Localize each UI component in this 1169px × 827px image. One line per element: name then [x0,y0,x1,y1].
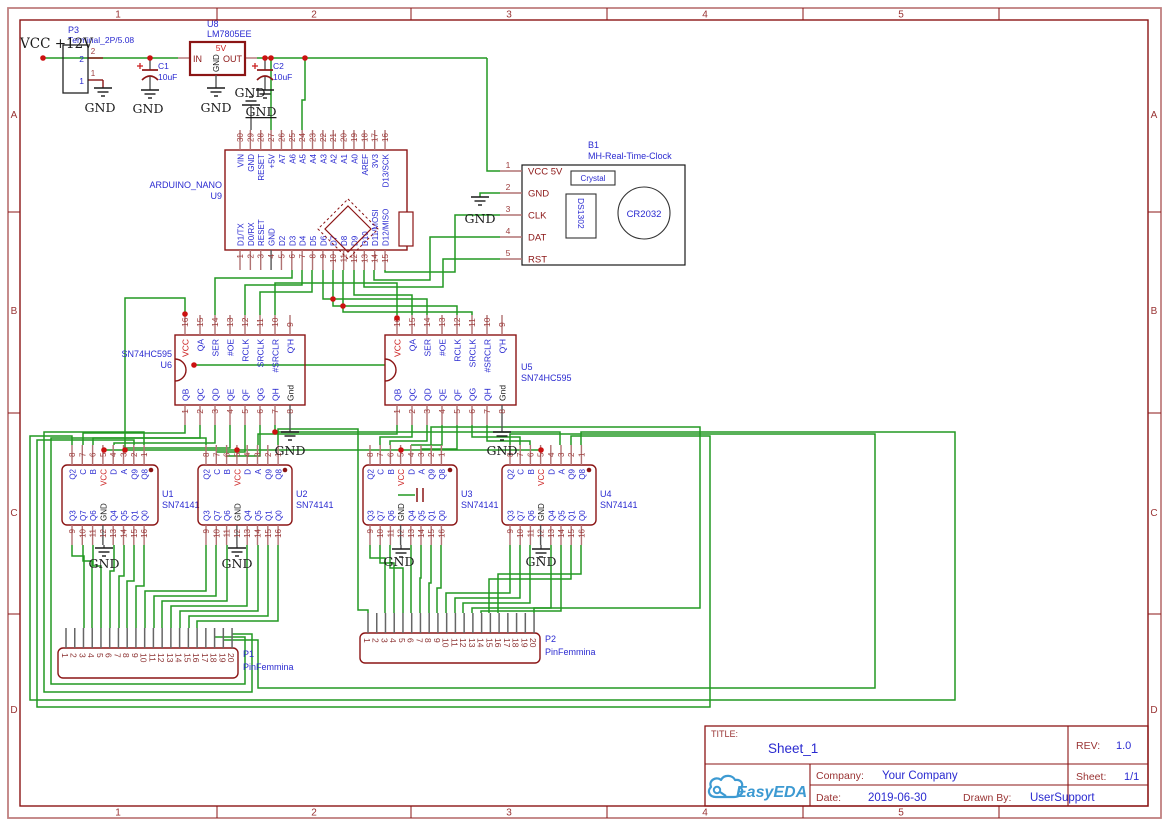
svg-text:13: 13 [243,528,252,537]
svg-text:A6: A6 [288,153,297,163]
gnd-symbol [281,432,299,440]
svg-text:10: 10 [376,528,385,537]
component-u4[interactable]: 89Q2Q3710CQ7611BQ6512VCCGND413DQ4314AQ52… [502,445,638,545]
svg-text:#OE: #OE [438,339,448,356]
svg-text:26: 26 [277,133,286,142]
svg-text:B: B [387,469,396,474]
svg-text:17: 17 [371,133,380,142]
svg-text:9: 9 [506,528,515,533]
svg-text:7: 7 [482,409,492,414]
svg-text:DAT: DAT [528,233,546,244]
schematic-sheet: 301VIND1/TX292GNDD0/RX283RESETRESET274+5… [0,0,1169,827]
svg-text:16: 16 [577,528,586,537]
svg-text:GND: GND [246,104,277,119]
component-u3[interactable]: 89Q2Q3710CQ7611BQ6512VCCGND413DQ4314AQ52… [363,445,499,545]
component-b1-rtc[interactable]: 1VCC 5V2GND3CLK4DAT5RSTCrystalDS1302CR20… [500,140,685,266]
svg-text:14: 14 [371,253,380,262]
svg-text:7: 7 [270,409,280,414]
svg-text:#SRCLR: #SRCLR [483,339,493,373]
svg-text:2: 2 [79,54,84,64]
svg-text:5: 5 [898,808,904,819]
svg-text:3: 3 [506,10,512,21]
svg-text:QD: QD [423,388,433,401]
svg-text:14: 14 [476,638,486,648]
svg-text:6: 6 [467,409,477,414]
svg-text:2: 2 [311,10,317,21]
svg-text:20: 20 [528,638,538,648]
svg-text:5: 5 [95,653,105,658]
svg-text:U2: U2 [296,489,308,499]
svg-text:2: 2 [567,452,576,457]
svg-text:GND: GND [201,100,232,115]
svg-text:GND: GND [235,85,266,100]
svg-text:B: B [89,469,98,474]
svg-text:RESET: RESET [257,154,266,181]
svg-text:Q7: Q7 [213,510,222,521]
svg-text:17: 17 [200,653,210,663]
svg-text:1: 1 [236,253,245,258]
component-u8-regulator[interactable]: INOUTGND5VU8LM7805EE [178,19,257,75]
drawnby-value[interactable]: UserSupport [1030,792,1095,804]
svg-text:Q1: Q1 [264,510,273,521]
component-p2[interactable]: 1234567891011121314151617181920P2PinFemm… [360,613,596,663]
svg-text:15: 15 [427,528,436,537]
svg-text:Q5: Q5 [254,510,263,521]
svg-text:Q8: Q8 [275,468,284,479]
svg-text:SN74141: SN74141 [162,500,200,510]
svg-text:9: 9 [366,528,375,533]
svg-text:B: B [527,469,536,474]
svg-text:Q3: Q3 [203,510,212,521]
svg-text:C: C [1150,508,1157,519]
svg-text:12: 12 [452,317,462,327]
svg-text:A4: A4 [309,153,318,163]
svg-text:13: 13 [225,317,235,327]
svg-text:7: 7 [212,452,221,457]
svg-text:QF: QF [453,389,463,401]
svg-text:2: 2 [195,409,205,414]
svg-text:10: 10 [329,253,338,262]
svg-text:4: 4 [388,638,398,643]
svg-text:Q2: Q2 [507,468,516,479]
svg-text:2: 2 [246,253,255,258]
svg-text:19: 19 [519,638,529,648]
svg-text:11: 11 [526,528,535,537]
company-label: Company: [816,770,864,782]
svg-text:#SRCLR: #SRCLR [271,339,281,373]
svg-text:3: 3 [422,409,432,414]
svg-text:7: 7 [78,452,87,457]
svg-text:Q8: Q8 [578,468,587,479]
svg-text:Q4: Q4 [110,510,119,521]
svg-text:10uF: 10uF [158,72,177,82]
svg-text:QF: QF [241,389,251,401]
svg-text:A7: A7 [278,153,287,163]
svg-text:23: 23 [309,133,318,142]
title-label: TITLE: [711,729,738,739]
svg-text:10: 10 [78,528,87,537]
svg-text:D4: D4 [299,235,308,246]
svg-text:QA: QA [196,339,206,352]
gnd-symbols [94,75,550,557]
svg-text:12: 12 [537,528,546,537]
svg-text:SN74141: SN74141 [296,500,334,510]
gnd-symbol [493,432,511,440]
gnd-symbol [228,548,246,556]
svg-text:D2: D2 [278,235,287,246]
svg-text:3: 3 [210,409,220,414]
svg-text:SN74HC595: SN74HC595 [121,349,172,359]
svg-text:28: 28 [257,133,266,142]
svg-text:10: 10 [212,528,221,537]
svg-text:Q5: Q5 [418,510,427,521]
svg-text:A: A [418,468,427,474]
svg-text:10: 10 [270,317,280,327]
svg-text:Q'H: Q'H [498,339,508,353]
svg-text:Q1: Q1 [130,510,139,521]
schematic-canvas[interactable]: 301VIND1/TX292GNDD0/RX283RESETRESET274+5… [0,0,1169,827]
svg-text:15: 15 [567,528,576,537]
svg-text:GND: GND [133,101,164,116]
svg-text:16: 16 [191,653,201,663]
svg-text:11: 11 [255,318,265,327]
svg-text:5: 5 [277,253,286,258]
title-block[interactable]: TITLE: Sheet_1 REV: 1.0 Company: Your Co… [705,726,1148,806]
svg-text:14: 14 [210,317,220,327]
svg-text:Q4: Q4 [407,510,416,521]
svg-text:Q7: Q7 [517,510,526,521]
svg-text:25: 25 [288,133,297,142]
svg-text:VCC: VCC [537,469,546,486]
svg-text:3: 3 [77,653,87,658]
svg-text:1: 1 [140,452,149,457]
svg-text:+5V: +5V [268,153,277,168]
svg-text:4: 4 [243,452,252,457]
svg-text:QA: QA [408,339,418,352]
svg-text:A2: A2 [330,153,339,163]
svg-text:Gnd: Gnd [498,385,508,401]
svg-text:6: 6 [526,452,535,457]
svg-text:Q3: Q3 [507,510,516,521]
svg-text:Q5: Q5 [120,510,129,521]
svg-text:VCC: VCC [397,469,406,486]
svg-text:4: 4 [109,452,118,457]
svg-text:VCC: VCC [233,469,242,486]
svg-text:QD: QD [211,388,221,401]
rev-value[interactable]: 1.0 [1116,740,1131,752]
svg-text:QG: QG [256,388,266,401]
drawnby-label: Drawn By: [963,792,1011,804]
svg-text:GND: GND [89,556,120,571]
svg-text:22: 22 [319,133,328,142]
svg-text:Q4: Q4 [547,510,556,521]
svg-text:6: 6 [89,452,98,457]
svg-text:VIN: VIN [237,154,246,168]
svg-text:16: 16 [493,638,503,648]
wires[interactable] [30,58,955,707]
svg-text:15: 15 [484,638,494,648]
svg-text:A: A [11,110,18,121]
svg-text:8: 8 [497,409,507,414]
svg-text:5V: 5V [216,43,227,53]
svg-text:15: 15 [264,528,273,537]
svg-text:D: D [547,469,556,475]
svg-text:QH: QH [483,388,493,401]
svg-text:RCLK: RCLK [453,339,463,362]
svg-text:Q8: Q8 [141,468,150,479]
svg-text:QG: QG [468,388,478,401]
svg-text:2: 2 [311,808,317,819]
svg-text:AREF: AREF [361,154,370,175]
svg-text:U3: U3 [461,489,473,499]
svg-text:2: 2 [427,452,436,457]
svg-text:C: C [377,469,386,475]
svg-text:2: 2 [264,452,273,457]
svg-text:15: 15 [130,528,139,537]
svg-text:VCC 5V: VCC 5V [528,167,563,178]
svg-text:D11/MOSI: D11/MOSI [371,209,380,246]
svg-text:GND: GND [528,189,549,200]
svg-text:1: 1 [180,409,190,414]
svg-text:1: 1 [115,10,121,21]
svg-text:RST: RST [528,255,547,266]
svg-text:3: 3 [557,452,566,457]
svg-text:GND: GND [99,503,108,521]
svg-text:Q3: Q3 [367,510,376,521]
svg-text:Gnd: Gnd [286,385,296,401]
svg-text:CLK: CLK [528,211,547,222]
svg-text:2: 2 [69,653,79,658]
svg-text:5: 5 [452,409,462,414]
svg-text:8: 8 [202,452,211,457]
svg-text:VCC: VCC [181,339,191,357]
svg-text:12: 12 [233,528,242,537]
svg-text:RCLK: RCLK [241,339,251,362]
gnd-symbol [141,90,159,98]
components[interactable]: 301VIND1/TX292GNDD0/RX283RESETRESET274+5… [58,19,685,678]
svg-text:11: 11 [386,528,395,537]
svg-text:18: 18 [511,638,521,648]
svg-text:ARDUINO_NANO: ARDUINO_NANO [149,180,222,190]
svg-text:Q6: Q6 [387,510,396,521]
svg-text:A: A [1151,110,1158,121]
svg-text:18: 18 [209,653,219,663]
svg-text:D: D [10,705,17,716]
svg-text:RESET: RESET [257,219,266,246]
svg-text:Q2: Q2 [69,468,78,479]
svg-text:9: 9 [202,528,211,533]
svg-text:VCC +12V: VCC +12V [19,36,93,52]
svg-text:8: 8 [68,452,77,457]
svg-text:LM7805EE: LM7805EE [207,29,252,39]
svg-text:4: 4 [407,452,416,457]
gnd-symbol [207,88,225,96]
gnd-symbol [471,197,489,205]
component-u1[interactable]: 89Q2Q3710CQ7611BQ6512VCCGND413DQ4314AQ52… [62,445,200,545]
svg-text:13: 13 [547,528,556,537]
svg-text:Q0: Q0 [578,510,587,521]
svg-text:#OE: #OE [226,339,236,356]
svg-text:C: C [79,469,88,475]
svg-text:9: 9 [130,653,140,658]
svg-text:GND: GND [212,54,221,72]
svg-text:GND: GND [268,228,277,246]
svg-text:U5: U5 [521,362,533,372]
svg-text:GND: GND [275,443,306,458]
net-labels[interactable]: GNDGNDGNDGNDGNDGNDGNDGNDGNDGNDGNDGNDVCC … [19,36,556,571]
svg-text:11: 11 [89,528,98,537]
svg-text:9: 9 [285,322,295,327]
svg-text:11: 11 [147,653,157,662]
svg-text:Q6: Q6 [527,510,536,521]
rev-label: REV: [1076,740,1100,752]
svg-text:16: 16 [180,317,190,327]
svg-text:12: 12 [240,317,250,327]
svg-text:1: 1 [91,69,96,78]
svg-text:3: 3 [506,808,512,819]
svg-text:1: 1 [362,638,372,643]
svg-text:D1/TX: D1/TX [237,223,246,246]
sheet-value[interactable]: 1/1 [1124,771,1139,783]
svg-text:Q0: Q0 [275,510,284,521]
svg-text:7: 7 [414,638,424,643]
company-value[interactable]: Your Company [882,770,958,782]
svg-text:GND: GND [85,100,116,115]
svg-text:13: 13 [165,653,175,663]
svg-text:15: 15 [182,653,192,663]
svg-text:13: 13 [437,317,447,327]
svg-text:B1: B1 [588,140,599,150]
svg-text:C: C [213,469,222,475]
svg-text:18: 18 [360,133,369,142]
svg-text:Q2: Q2 [367,468,376,479]
svg-text:A: A [558,468,567,474]
component-u2[interactable]: 89Q2Q3710CQ7611BQ6512VCCGND413DQ4314AQ52… [198,445,334,545]
svg-text:14: 14 [422,317,432,327]
svg-text:P2: P2 [545,634,556,644]
svg-text:VCC: VCC [99,469,108,486]
svg-text:8: 8 [309,253,318,258]
svg-text:QC: QC [196,388,206,401]
svg-text:17: 17 [502,638,512,648]
svg-text:D: D [110,469,119,475]
svg-text:Q8: Q8 [438,468,447,479]
svg-text:9: 9 [319,253,328,258]
svg-text:Q9: Q9 [428,468,437,479]
svg-text:19: 19 [217,653,227,663]
svg-text:10: 10 [516,528,525,537]
svg-text:GND: GND [247,154,256,172]
svg-text:27: 27 [267,133,276,142]
svg-text:6: 6 [223,452,232,457]
svg-text:2: 2 [371,638,381,643]
svg-text:Crystal: Crystal [581,174,606,183]
svg-text:U6: U6 [160,360,172,370]
gnd-symbol [95,548,113,556]
sheet-title[interactable]: Sheet_1 [768,741,818,756]
svg-text:3: 3 [379,638,389,643]
svg-text:13: 13 [467,638,477,648]
svg-text:QE: QE [226,388,236,401]
svg-text:SER: SER [423,339,433,356]
svg-text:8: 8 [285,409,295,414]
svg-text:4: 4 [702,808,708,819]
svg-text:D: D [1150,705,1157,716]
svg-text:7: 7 [376,452,385,457]
svg-text:7: 7 [298,253,307,258]
svg-text:SN74HC595: SN74HC595 [521,373,572,383]
svg-text:GND: GND [222,556,253,571]
component-u6[interactable]: 161VCCQB152QAQC143SERQD134#OEQE125RCLKQF… [121,315,305,425]
svg-text:B: B [11,306,18,317]
svg-text:16: 16 [140,528,149,537]
svg-text:16: 16 [437,528,446,537]
svg-text:3: 3 [417,452,426,457]
svg-text:13: 13 [407,528,416,537]
svg-text:11: 11 [467,318,477,327]
svg-text:10: 10 [139,653,149,663]
svg-text:SER: SER [211,339,221,356]
component-u9[interactable]: 301VIND1/TX292GNDD0/RX283RESETRESET274+5… [149,130,413,270]
svg-text:IN: IN [193,54,202,64]
svg-text:GND: GND [397,503,406,521]
svg-text:1: 1 [506,160,511,170]
svg-text:D0/RX: D0/RX [247,222,256,246]
easyeda-logo: EasyEDA [709,776,807,801]
svg-text:Q5: Q5 [558,510,567,521]
svg-text:OUT: OUT [223,54,243,64]
svg-text:A: A [254,468,263,474]
svg-text:QE: QE [438,388,448,401]
svg-text:19: 19 [350,133,359,142]
svg-text:Q0: Q0 [438,510,447,521]
svg-text:12: 12 [99,528,108,537]
svg-text:C: C [517,469,526,475]
svg-text:D8: D8 [340,235,349,246]
svg-text:12: 12 [350,253,359,262]
svg-text:11: 11 [449,638,459,647]
date-value[interactable]: 2019-06-30 [868,792,927,804]
svg-text:5: 5 [898,10,904,21]
svg-text:20: 20 [340,133,349,142]
svg-text:Q3: Q3 [69,510,78,521]
svg-text:3: 3 [254,452,263,457]
svg-text:3: 3 [120,452,129,457]
svg-text:CR2032: CR2032 [627,209,662,220]
svg-text:DS1302: DS1302 [576,198,586,229]
sheet-label: Sheet: [1076,771,1106,783]
svg-text:D6: D6 [319,235,328,246]
svg-text:6: 6 [386,452,395,457]
svg-text:QB: QB [181,388,191,401]
svg-text:Q7: Q7 [377,510,386,521]
svg-text:21: 21 [329,133,338,142]
svg-text:14: 14 [254,528,263,537]
component-u5[interactable]: 161VCCQB152QAQC143SERQD134#OEQE125RCLKQF… [385,315,572,425]
component-c1-capacitor[interactable]: C110uF [137,58,177,90]
svg-text:GND: GND [465,211,496,226]
svg-text:A: A [120,468,129,474]
svg-text:GND: GND [526,554,557,569]
svg-text:A3: A3 [319,153,328,163]
svg-text:MH-Real-Time-Clock: MH-Real-Time-Clock [588,151,672,161]
svg-text:B: B [223,469,232,474]
svg-text:20: 20 [226,653,236,663]
svg-text:7: 7 [516,452,525,457]
svg-text:C1: C1 [158,61,169,71]
svg-text:10: 10 [482,317,492,327]
svg-text:6: 6 [288,253,297,258]
